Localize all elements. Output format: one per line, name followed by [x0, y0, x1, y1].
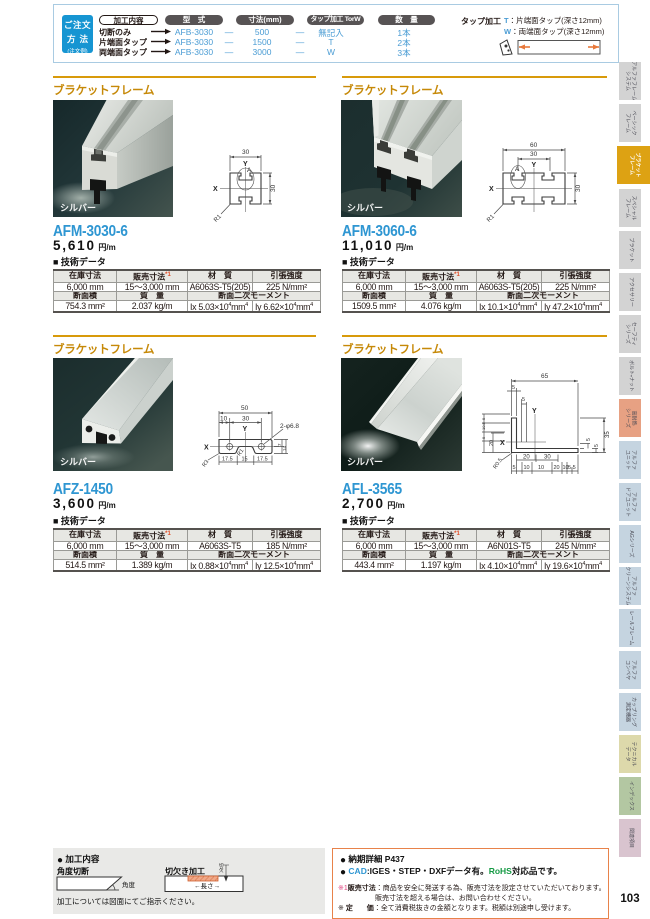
svg-text:15: 15	[242, 457, 248, 463]
svg-text:シルバー: シルバー	[347, 203, 383, 213]
svg-text:35: 35	[605, 431, 610, 438]
svg-text:30: 30	[242, 149, 250, 156]
svg-text:R0.5: R0.5	[492, 457, 504, 470]
svg-text:5: 5	[481, 436, 486, 439]
svg-text:10.5: 10.5	[481, 421, 486, 430]
svg-text:10: 10	[220, 416, 228, 423]
svg-text:5: 5	[522, 397, 525, 403]
svg-text:X: X	[204, 445, 209, 452]
svg-text:Y: Y	[243, 426, 248, 433]
svg-text:シルバー: シルバー	[60, 203, 96, 213]
svg-text:5.5: 5.5	[568, 465, 576, 471]
svg-text:30: 30	[575, 184, 582, 192]
svg-text:30: 30	[530, 151, 538, 158]
svg-text:5: 5	[594, 444, 600, 447]
svg-text:60: 60	[530, 142, 538, 149]
svg-text:7: 7	[277, 443, 282, 446]
svg-text:17.5: 17.5	[257, 457, 268, 463]
svg-text:17.5: 17.5	[222, 457, 233, 463]
svg-text:65: 65	[541, 373, 549, 380]
svg-text:角度: 角度	[122, 880, 136, 889]
svg-text:30: 30	[242, 416, 250, 423]
svg-text:R1: R1	[213, 214, 223, 224]
svg-text:シルバー: シルバー	[60, 457, 96, 467]
svg-text:欠: 欠	[219, 867, 224, 874]
svg-text:A: A	[515, 166, 520, 173]
svg-text:R1: R1	[486, 214, 496, 224]
svg-text:Y: Y	[532, 408, 537, 415]
svg-text:5: 5	[512, 385, 515, 391]
svg-text:20: 20	[489, 440, 495, 446]
svg-text:←長さ→: ←長さ→	[194, 882, 220, 890]
svg-text:X: X	[500, 440, 505, 447]
svg-text:10: 10	[538, 465, 544, 471]
svg-text:20: 20	[523, 455, 530, 461]
svg-text:5: 5	[481, 417, 486, 420]
svg-text:30: 30	[544, 455, 551, 461]
svg-text:20: 20	[554, 465, 560, 471]
svg-text:X: X	[489, 186, 494, 193]
svg-text:5: 5	[513, 465, 516, 471]
svg-text:50: 50	[241, 405, 249, 412]
svg-text:10: 10	[524, 465, 530, 471]
svg-text:X: X	[213, 186, 218, 193]
svg-text:5: 5	[586, 438, 592, 441]
svg-text:14: 14	[282, 445, 287, 451]
svg-text:シルバー: シルバー	[347, 457, 383, 467]
svg-text:R3: R3	[201, 459, 210, 468]
svg-text:Y: Y	[532, 162, 537, 169]
svg-text:30: 30	[270, 184, 277, 192]
